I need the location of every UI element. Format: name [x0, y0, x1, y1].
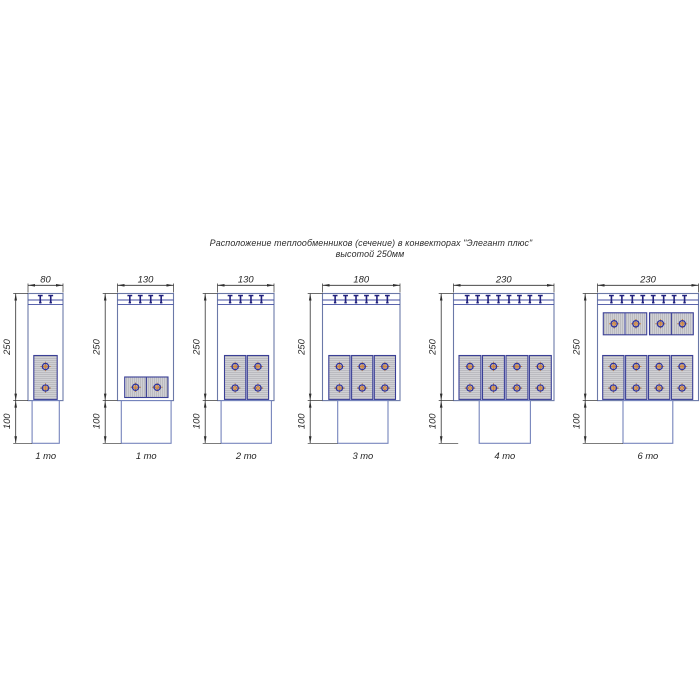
svg-text:1 то: 1 то	[35, 450, 56, 461]
svg-text:3 то: 3 то	[352, 450, 373, 461]
svg-text:230: 230	[495, 273, 512, 284]
svg-text:100: 100	[191, 413, 202, 429]
svg-text:250: 250	[1, 338, 12, 355]
svg-text:1 то: 1 то	[136, 450, 157, 461]
svg-text:100: 100	[296, 413, 307, 429]
svg-text:6 то: 6 то	[638, 450, 659, 461]
svg-text:250: 250	[427, 338, 438, 355]
svg-text:180: 180	[353, 273, 369, 284]
svg-text:230: 230	[639, 273, 656, 284]
svg-text:250: 250	[571, 338, 582, 355]
svg-text:250: 250	[191, 338, 202, 355]
svg-text:80: 80	[40, 273, 51, 284]
svg-text:100: 100	[571, 413, 582, 429]
svg-text:высотой 250мм: высотой 250мм	[336, 249, 405, 259]
svg-text:2 то: 2 то	[235, 450, 257, 461]
svg-text:4 то: 4 то	[494, 450, 515, 461]
svg-text:100: 100	[91, 413, 102, 429]
svg-text:250: 250	[91, 338, 102, 355]
svg-text:100: 100	[1, 413, 12, 429]
svg-text:Расположение теплообменников (: Расположение теплообменников (сечение) в…	[210, 238, 533, 248]
svg-text:130: 130	[238, 273, 254, 284]
svg-text:130: 130	[138, 273, 154, 284]
svg-text:250: 250	[296, 338, 307, 355]
svg-text:100: 100	[427, 413, 438, 429]
